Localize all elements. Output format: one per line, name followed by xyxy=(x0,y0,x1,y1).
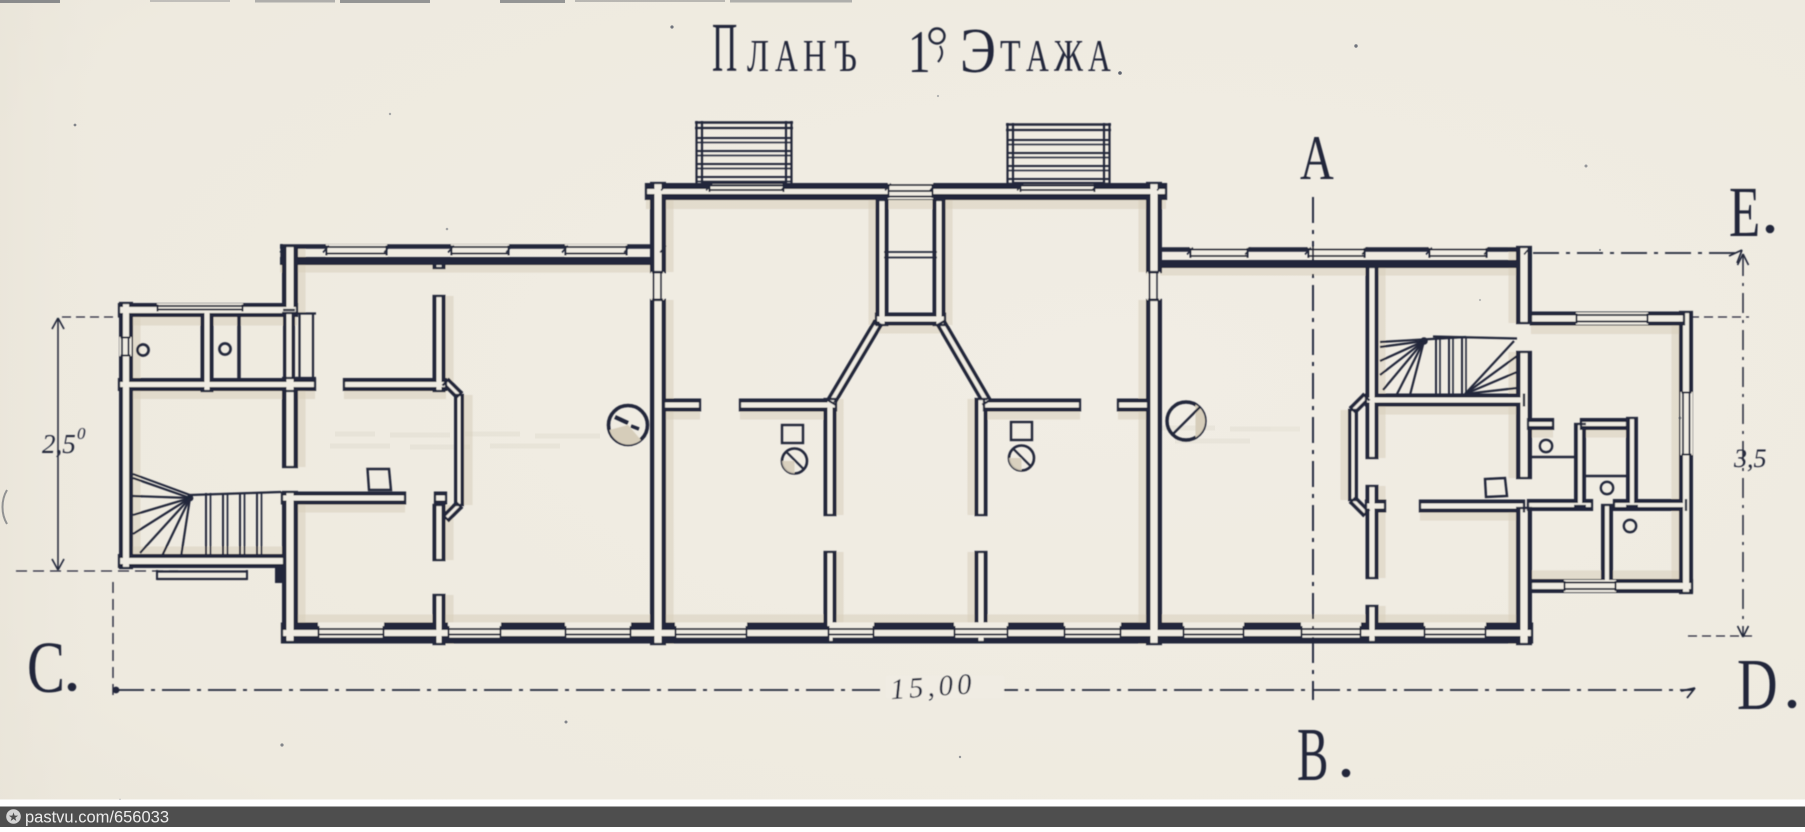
svg-text:А: А xyxy=(775,32,798,82)
svg-text:Т: Т xyxy=(1000,31,1021,81)
svg-text:3,5: 3,5 xyxy=(1733,444,1767,473)
svg-text:C: C xyxy=(27,628,65,708)
svg-text:Н: Н xyxy=(803,32,826,81)
svg-text:А: А xyxy=(1026,32,1049,82)
svg-text:★: ★ xyxy=(8,810,19,824)
svg-text:П: П xyxy=(712,9,737,86)
svg-text:B: B xyxy=(1297,713,1328,797)
svg-text:1: 1 xyxy=(908,20,930,86)
svg-text:E: E xyxy=(1729,171,1760,252)
svg-text:Э: Э xyxy=(960,15,996,86)
svg-text:Ж: Ж xyxy=(1054,32,1084,81)
svg-text:Л: Л xyxy=(747,32,769,81)
svg-text:Ъ: Ъ xyxy=(834,32,857,81)
svg-text:А: А xyxy=(1088,32,1111,82)
svg-text:2,5: 2,5 xyxy=(42,429,76,459)
svg-text:pastvu.com/656033: pastvu.com/656033 xyxy=(25,809,169,827)
svg-text:D: D xyxy=(1737,645,1778,726)
svg-text:0: 0 xyxy=(77,424,86,443)
svg-text:15,00: 15,00 xyxy=(889,668,976,706)
svg-text:A: A xyxy=(1300,123,1334,194)
